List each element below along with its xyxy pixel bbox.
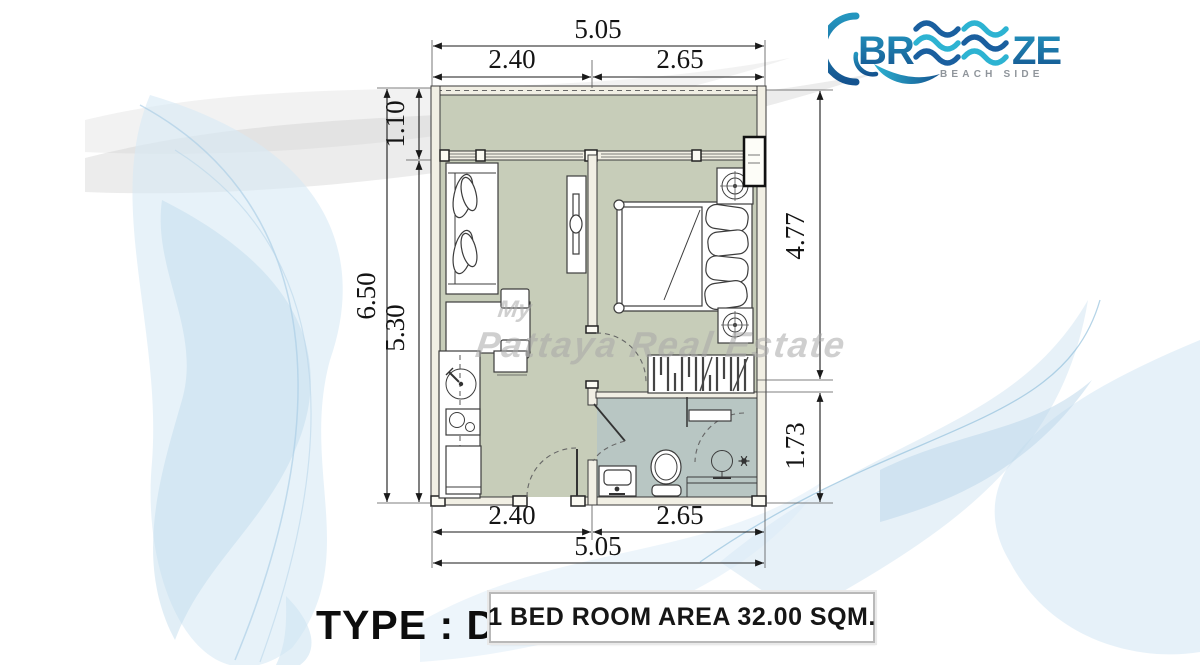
- shelf: [689, 410, 731, 421]
- window-mullion: [440, 150, 449, 161]
- area-info-box: 1 BED ROOM AREA 32.00 SQM.: [489, 592, 875, 643]
- ac-unit: [744, 137, 765, 186]
- window-mullion: [692, 150, 701, 161]
- area-label: 1 BED ROOM AREA 32.00 SQM.: [488, 603, 876, 632]
- dim-left-total: 6.50: [351, 272, 381, 319]
- column: [752, 496, 766, 506]
- door-jamb: [586, 326, 598, 333]
- kitchen-stool: [494, 351, 527, 372]
- tv-screen: [570, 215, 582, 233]
- stool: [501, 289, 529, 308]
- dim-bottom-left: 2.40: [488, 500, 535, 530]
- pillow: [707, 229, 749, 257]
- toilet-base: [652, 485, 681, 496]
- dim-bottom-right: 2.65: [656, 500, 703, 530]
- dim-left-upper: 1.10: [380, 100, 410, 147]
- dim-bottom-total: 5.05: [574, 531, 621, 561]
- bed-corner: [614, 303, 624, 313]
- logo-c-swoosh: [828, 16, 856, 82]
- dim-left-lower: 5.30: [380, 304, 410, 351]
- dim-right-upper: 4.77: [780, 212, 810, 259]
- bed-corner: [614, 200, 624, 210]
- dim-right-lower: 1.73: [780, 422, 810, 469]
- logo-text-left: BR: [858, 29, 915, 73]
- floor-plan: 5.05 2.40 2.65 2.40 2.65 5.05 6.50 1.10: [0, 0, 1200, 665]
- door-jamb: [586, 381, 598, 388]
- breeze-logo: BR ZE BEACH SIDE: [828, 12, 1070, 90]
- logo-tagline: BEACH SIDE: [940, 69, 1044, 80]
- balcony-parapet-wall: [431, 86, 766, 95]
- mattress: [622, 207, 702, 306]
- balcony-floor: [440, 95, 757, 151]
- vanity-faucet: [615, 487, 620, 492]
- logo-wave-letters: [916, 23, 1006, 63]
- dim-top-right: 2.65: [656, 44, 703, 74]
- page: 5.05 2.40 2.65 2.40 2.65 5.05 6.50 1.10: [0, 0, 1200, 665]
- logo-text-right: ZE: [1012, 29, 1061, 73]
- washbasin: [604, 470, 631, 485]
- dim-top-total: 5.05: [574, 14, 621, 44]
- type-label: TYPE : D: [316, 602, 497, 649]
- bathroom-left-wall: [588, 460, 597, 505]
- interior-wall-upper: [588, 155, 597, 333]
- window-mullion: [476, 150, 485, 161]
- dim-top-left: 2.40: [488, 44, 535, 74]
- column: [571, 496, 585, 506]
- pillow: [705, 255, 749, 283]
- balcony-divider-wall: [440, 151, 757, 160]
- stove: [446, 409, 480, 435]
